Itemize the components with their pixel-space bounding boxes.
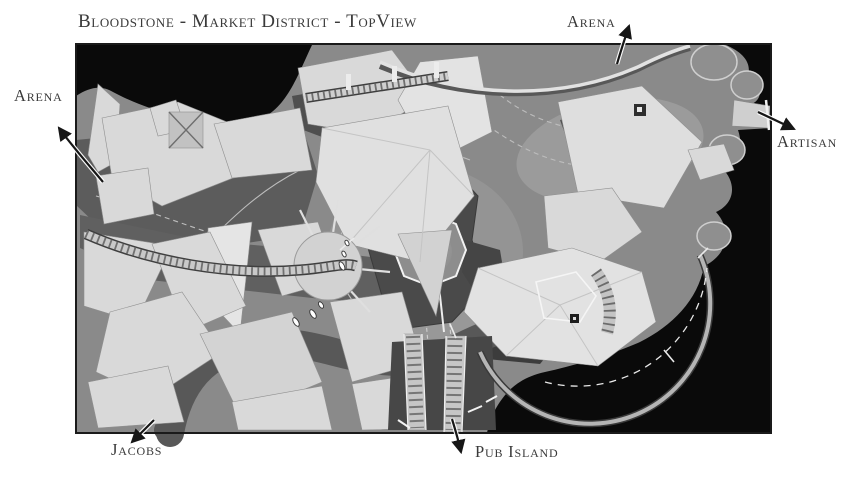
label-pub-island: Pub Island	[475, 442, 558, 462]
screenshot-page: Bloodstone - Market District - TopView A…	[0, 0, 850, 477]
label-arena-north: Arena	[567, 12, 616, 32]
label-arena-west: Arena	[14, 86, 63, 106]
district-topview-render	[0, 0, 850, 477]
page-title: Bloodstone - Market District - TopView	[78, 11, 417, 33]
label-artisan: Artisan	[777, 132, 837, 152]
pier-bridges	[388, 334, 497, 432]
label-jacobs: Jacobs	[111, 440, 162, 460]
